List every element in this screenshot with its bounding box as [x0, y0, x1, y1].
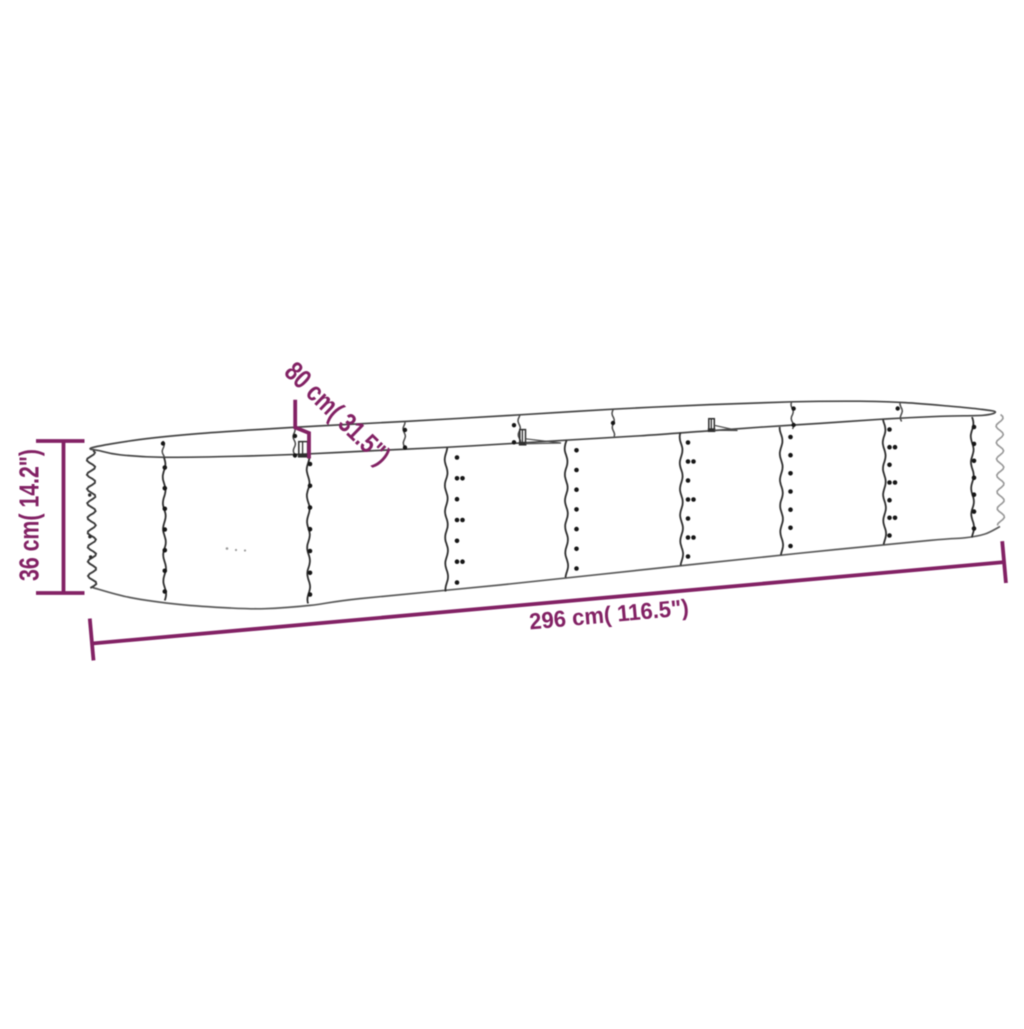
svg-text:36 cm( 14.2"): 36 cm( 14.2") — [14, 449, 45, 581]
